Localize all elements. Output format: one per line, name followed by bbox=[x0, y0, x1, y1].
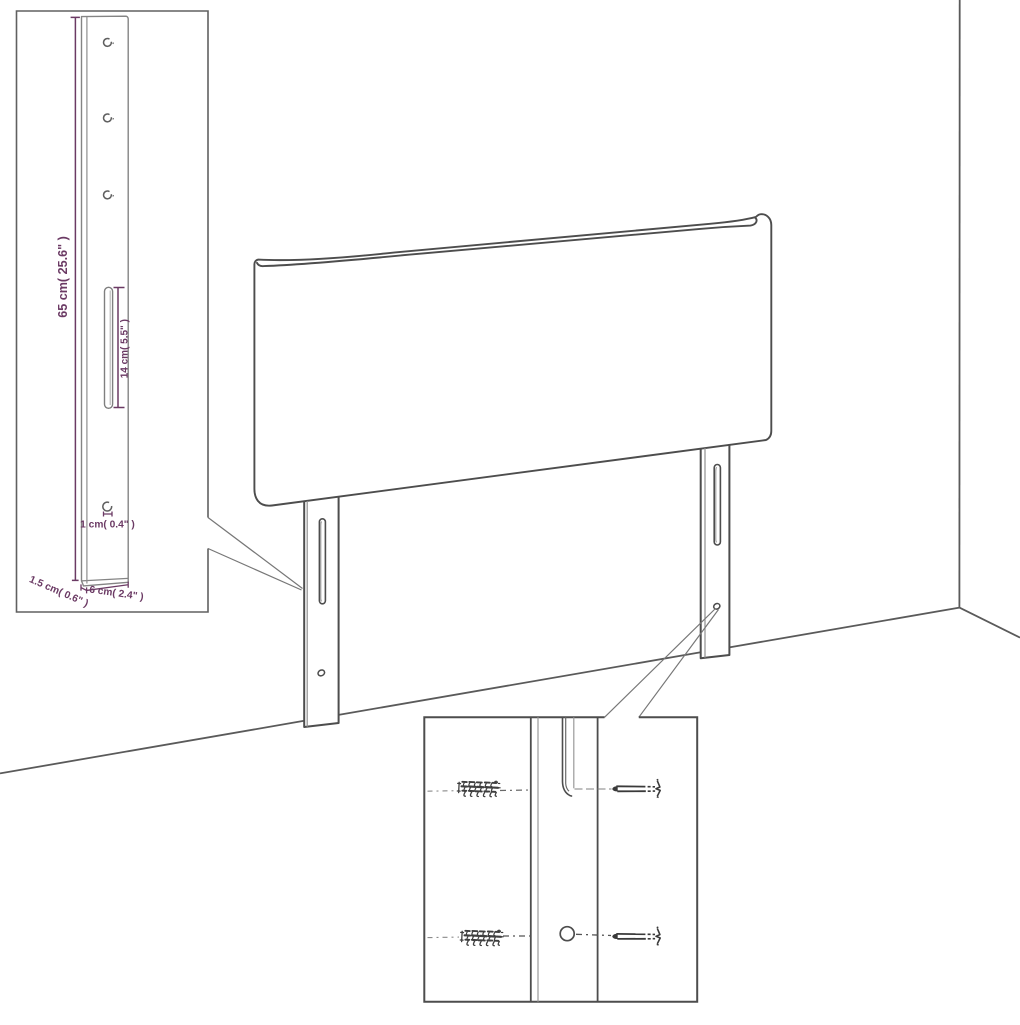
svg-text:65 cm( 25.6" ): 65 cm( 25.6" ) bbox=[56, 236, 70, 318]
svg-text:14 cm( 5.5" ): 14 cm( 5.5" ) bbox=[120, 319, 131, 378]
svg-text:1 cm( 0.4" ): 1 cm( 0.4" ) bbox=[80, 520, 135, 531]
